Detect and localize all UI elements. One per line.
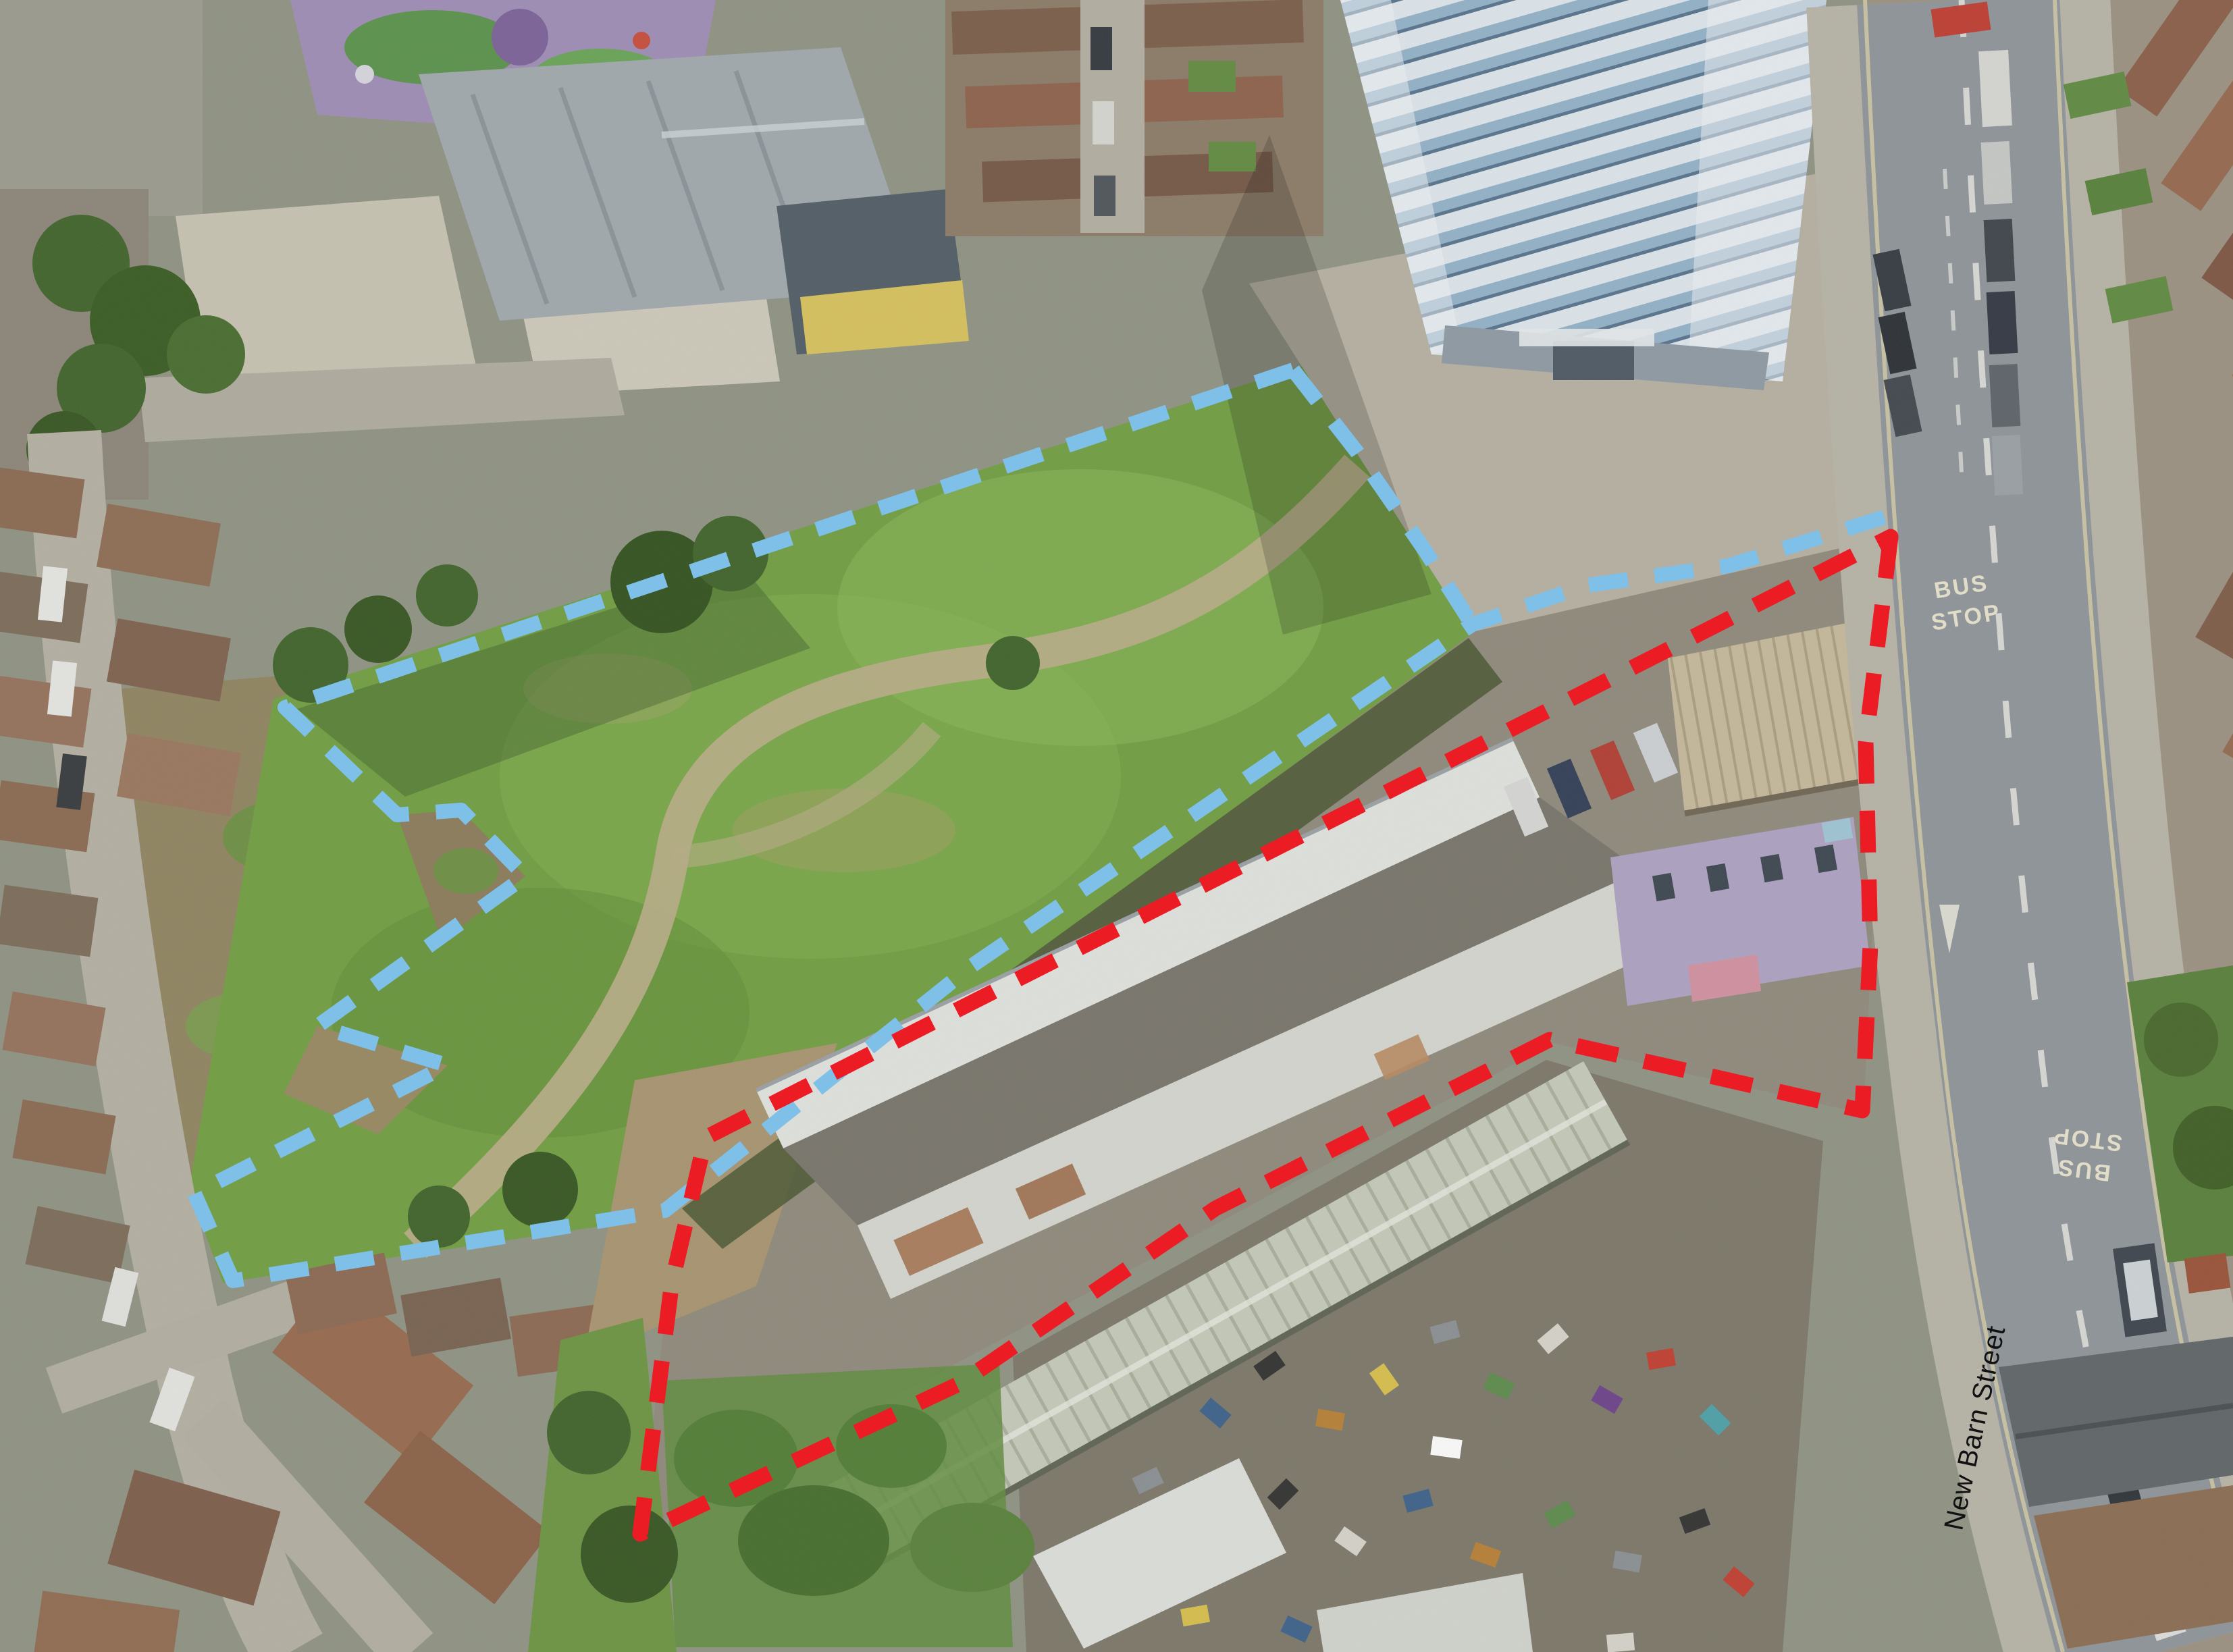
aerial-photo: BUSSTOP BUSSTOP	[0, 0, 2233, 1652]
grain-overlay	[0, 0, 2233, 1652]
